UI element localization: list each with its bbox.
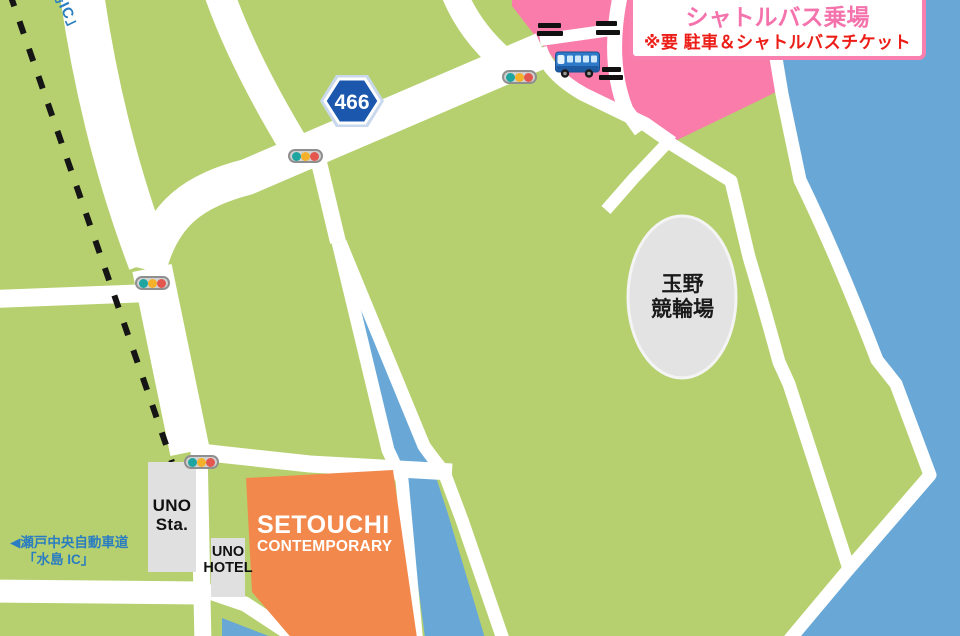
hotel-label-line1: UNO	[202, 544, 254, 560]
expressway-label-line1: ◀瀬戸中央自動車道	[10, 534, 128, 551]
route-shield-number: 466	[334, 91, 369, 114]
shuttle-bus-icon	[554, 48, 602, 80]
info-box-subtitle: シャトルバス乗場	[633, 4, 922, 30]
road-station-south	[199, 448, 203, 636]
traffic-light-icon	[135, 276, 170, 290]
traffic-light-amber-dot	[197, 458, 206, 467]
traffic-light-teal-dot	[506, 73, 515, 82]
traffic-light-red-dot	[524, 73, 533, 82]
map-canvas: 466 玉野競輪 駐車場 シャトルバス乗場	[0, 0, 960, 636]
station-label: UNO Sta.	[148, 496, 196, 534]
traffic-light-teal-dot	[292, 152, 301, 161]
stadium-label-line1: 玉野	[632, 272, 733, 297]
stadium-label: 玉野 競輪場	[632, 272, 733, 322]
traffic-light-amber-dot	[301, 152, 310, 161]
expressway-label-line2: 「水島 IC」	[10, 551, 128, 568]
traffic-light-icon	[288, 149, 323, 163]
traffic-light-red-dot	[157, 279, 166, 288]
traffic-light-amber-dot	[148, 279, 157, 288]
traffic-light-amber-dot	[515, 73, 524, 82]
expressway-label: ◀瀬戸中央自動車道 「水島 IC」	[10, 534, 128, 568]
road-bottom-west	[0, 591, 202, 593]
stadium-label-line2: 競輪場	[632, 297, 733, 322]
hotel-label: UNO HOTEL	[202, 544, 254, 576]
map-base: 466	[0, 0, 960, 636]
road-west	[0, 293, 150, 299]
info-box-note: ※要 駐車＆シャトルバスチケット	[633, 30, 922, 55]
traffic-light-icon	[502, 70, 537, 84]
venue-label-line1: SETOUCHI	[257, 512, 392, 539]
venue-label: SETOUCHI CONTEMPORARY	[257, 512, 392, 555]
traffic-light-red-dot	[310, 152, 319, 161]
hotel-label-line2: HOTEL	[202, 560, 254, 576]
traffic-light-teal-dot	[188, 458, 197, 467]
traffic-light-icon	[184, 455, 219, 469]
traffic-light-red-dot	[206, 458, 215, 467]
station-label-line1: UNO	[148, 496, 196, 515]
shuttle-info-box: 玉野競輪 駐車場 シャトルバス乗場 ※要 駐車＆シャトルバスチケット	[629, 0, 926, 60]
venue-label-line2: CONTEMPORARY	[257, 539, 392, 555]
station-label-line2: Sta.	[148, 515, 196, 534]
traffic-light-teal-dot	[139, 279, 148, 288]
